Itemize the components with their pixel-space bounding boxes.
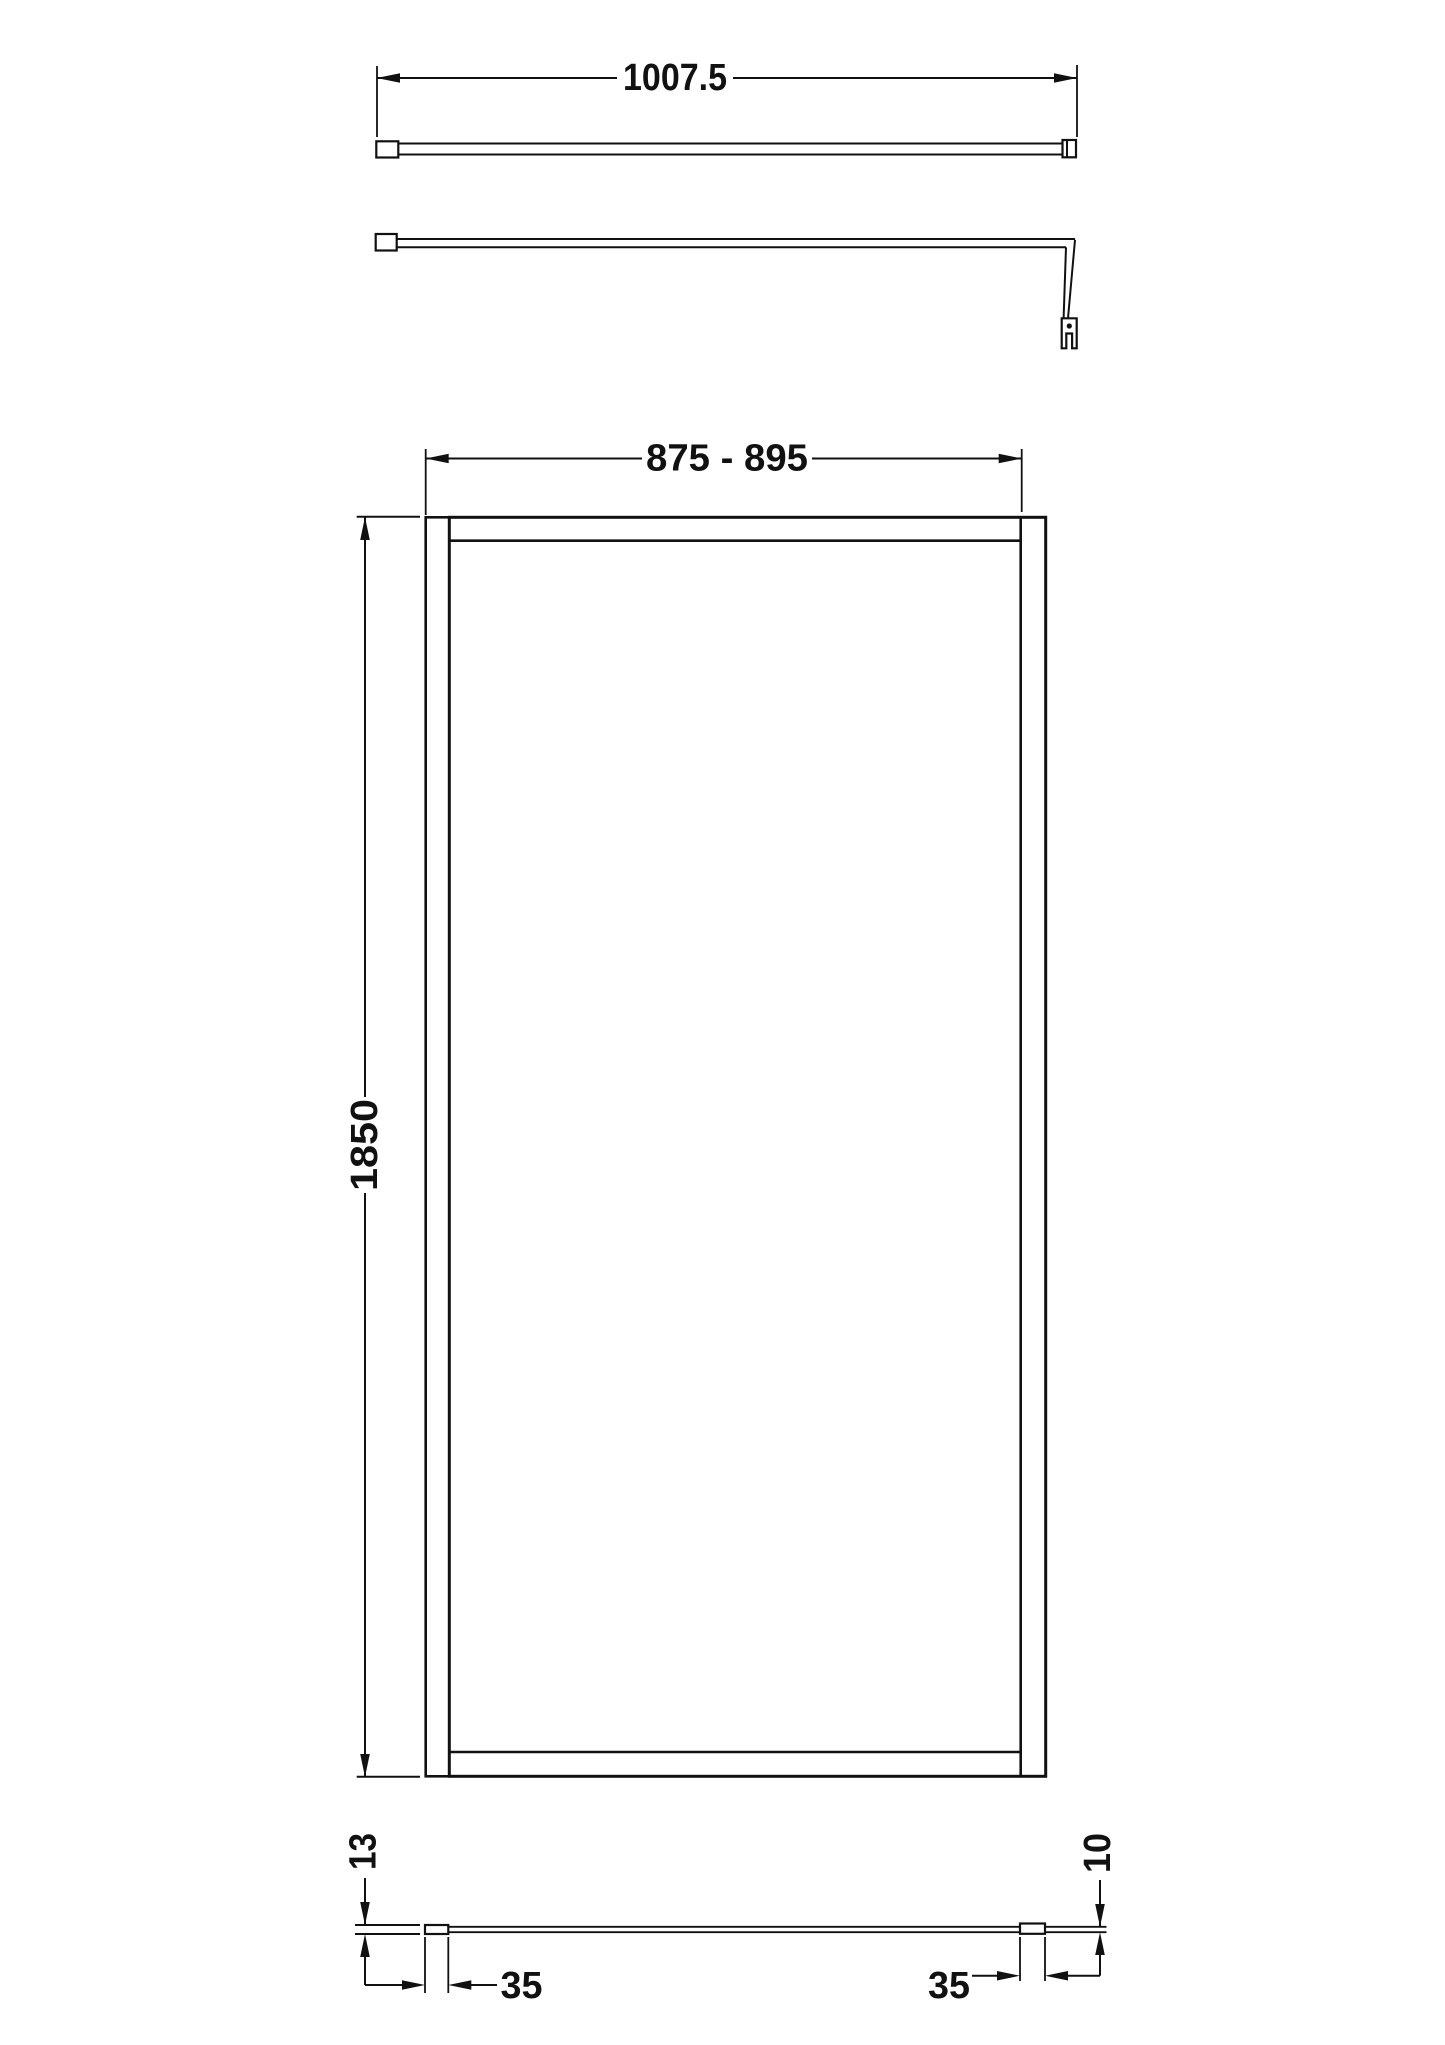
dim-glass-thickness-label: 10 — [1077, 1833, 1119, 1873]
arm-glass-clamp-top-view — [1063, 140, 1077, 157]
arm-wall-bracket-side-view — [376, 234, 397, 251]
dim-wall-width-label: 35 — [501, 1965, 543, 2007]
technical-drawing-page: 1007.5 875 - 895 1850 — [0, 0, 1445, 2045]
shower-screen-drawing: 1007.5 875 - 895 1850 — [0, 0, 1445, 2045]
end-profile-section — [1020, 1924, 1045, 1934]
clamp-screw-icon — [1067, 323, 1072, 328]
arrow-up-icon — [360, 517, 370, 540]
arrow-left-icon — [1045, 1971, 1068, 1981]
arm-bar-top-view — [398, 144, 1063, 155]
arm-drop-outer-edge — [1068, 240, 1075, 318]
arrow-left-icon — [377, 73, 400, 83]
arrow-left-icon — [426, 454, 449, 464]
arrow-up-icon — [360, 1934, 370, 1957]
arrow-left-icon — [448, 1980, 471, 1990]
arm-drop-inner-edge — [1064, 247, 1066, 318]
screen-front-view — [357, 449, 1046, 1777]
arrow-down-icon — [360, 1902, 370, 1925]
dim-arm-length-label: 1007.5 — [623, 57, 727, 99]
support-arm-side-view — [376, 234, 1077, 348]
dim-height-label: 1850 — [344, 1099, 386, 1191]
dim-wall-thickness-label: 13 — [343, 1833, 385, 1870]
dim-end-width-label: 35 — [928, 1965, 970, 2007]
arrow-right-icon — [999, 454, 1022, 464]
dim-width-label: 875 - 895 — [646, 438, 808, 480]
wall-profile-front-view — [426, 517, 450, 1776]
arm-glass-clamp-side-view — [1062, 318, 1077, 348]
arrow-right-icon — [402, 1980, 425, 1990]
arrow-up-icon — [1095, 1932, 1105, 1955]
screen-section-view — [355, 1878, 1107, 1993]
wall-profile-section — [425, 1925, 448, 1934]
arrow-down-icon — [1095, 1904, 1105, 1927]
arrow-down-icon — [360, 1754, 370, 1777]
arrow-right-icon — [997, 1971, 1020, 1981]
arrow-right-icon — [1054, 73, 1077, 83]
screen-frame-outer — [449, 517, 1045, 1776]
arm-wall-bracket-top-view — [376, 141, 398, 157]
